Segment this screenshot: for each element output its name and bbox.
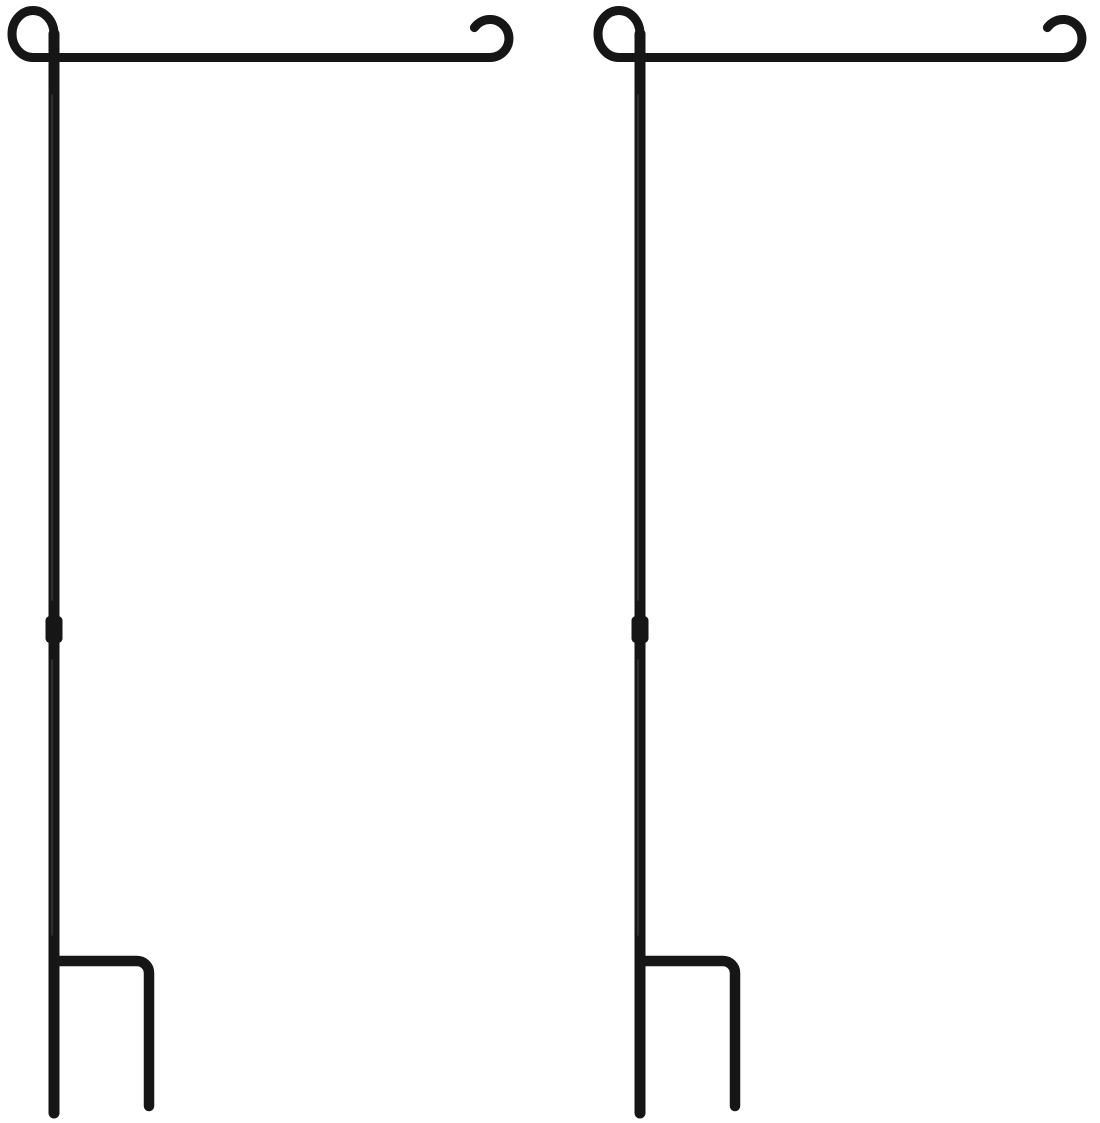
pole-coupler-joint (46, 616, 63, 643)
garden-flag-stand-right (598, 10, 1082, 1113)
garden-flag-stand-left (12, 10, 509, 1113)
product-photo (0, 0, 1100, 1123)
ground-stake-fork (54, 961, 149, 1106)
garden-flag-stands-illustration (0, 0, 1100, 1123)
flag-hanger-arm-with-loop-and-hook (12, 10, 509, 57)
flag-hanger-arm-with-loop-and-hook (598, 10, 1082, 57)
ground-stake-fork (640, 961, 735, 1106)
pole-coupler-joint (632, 616, 649, 643)
